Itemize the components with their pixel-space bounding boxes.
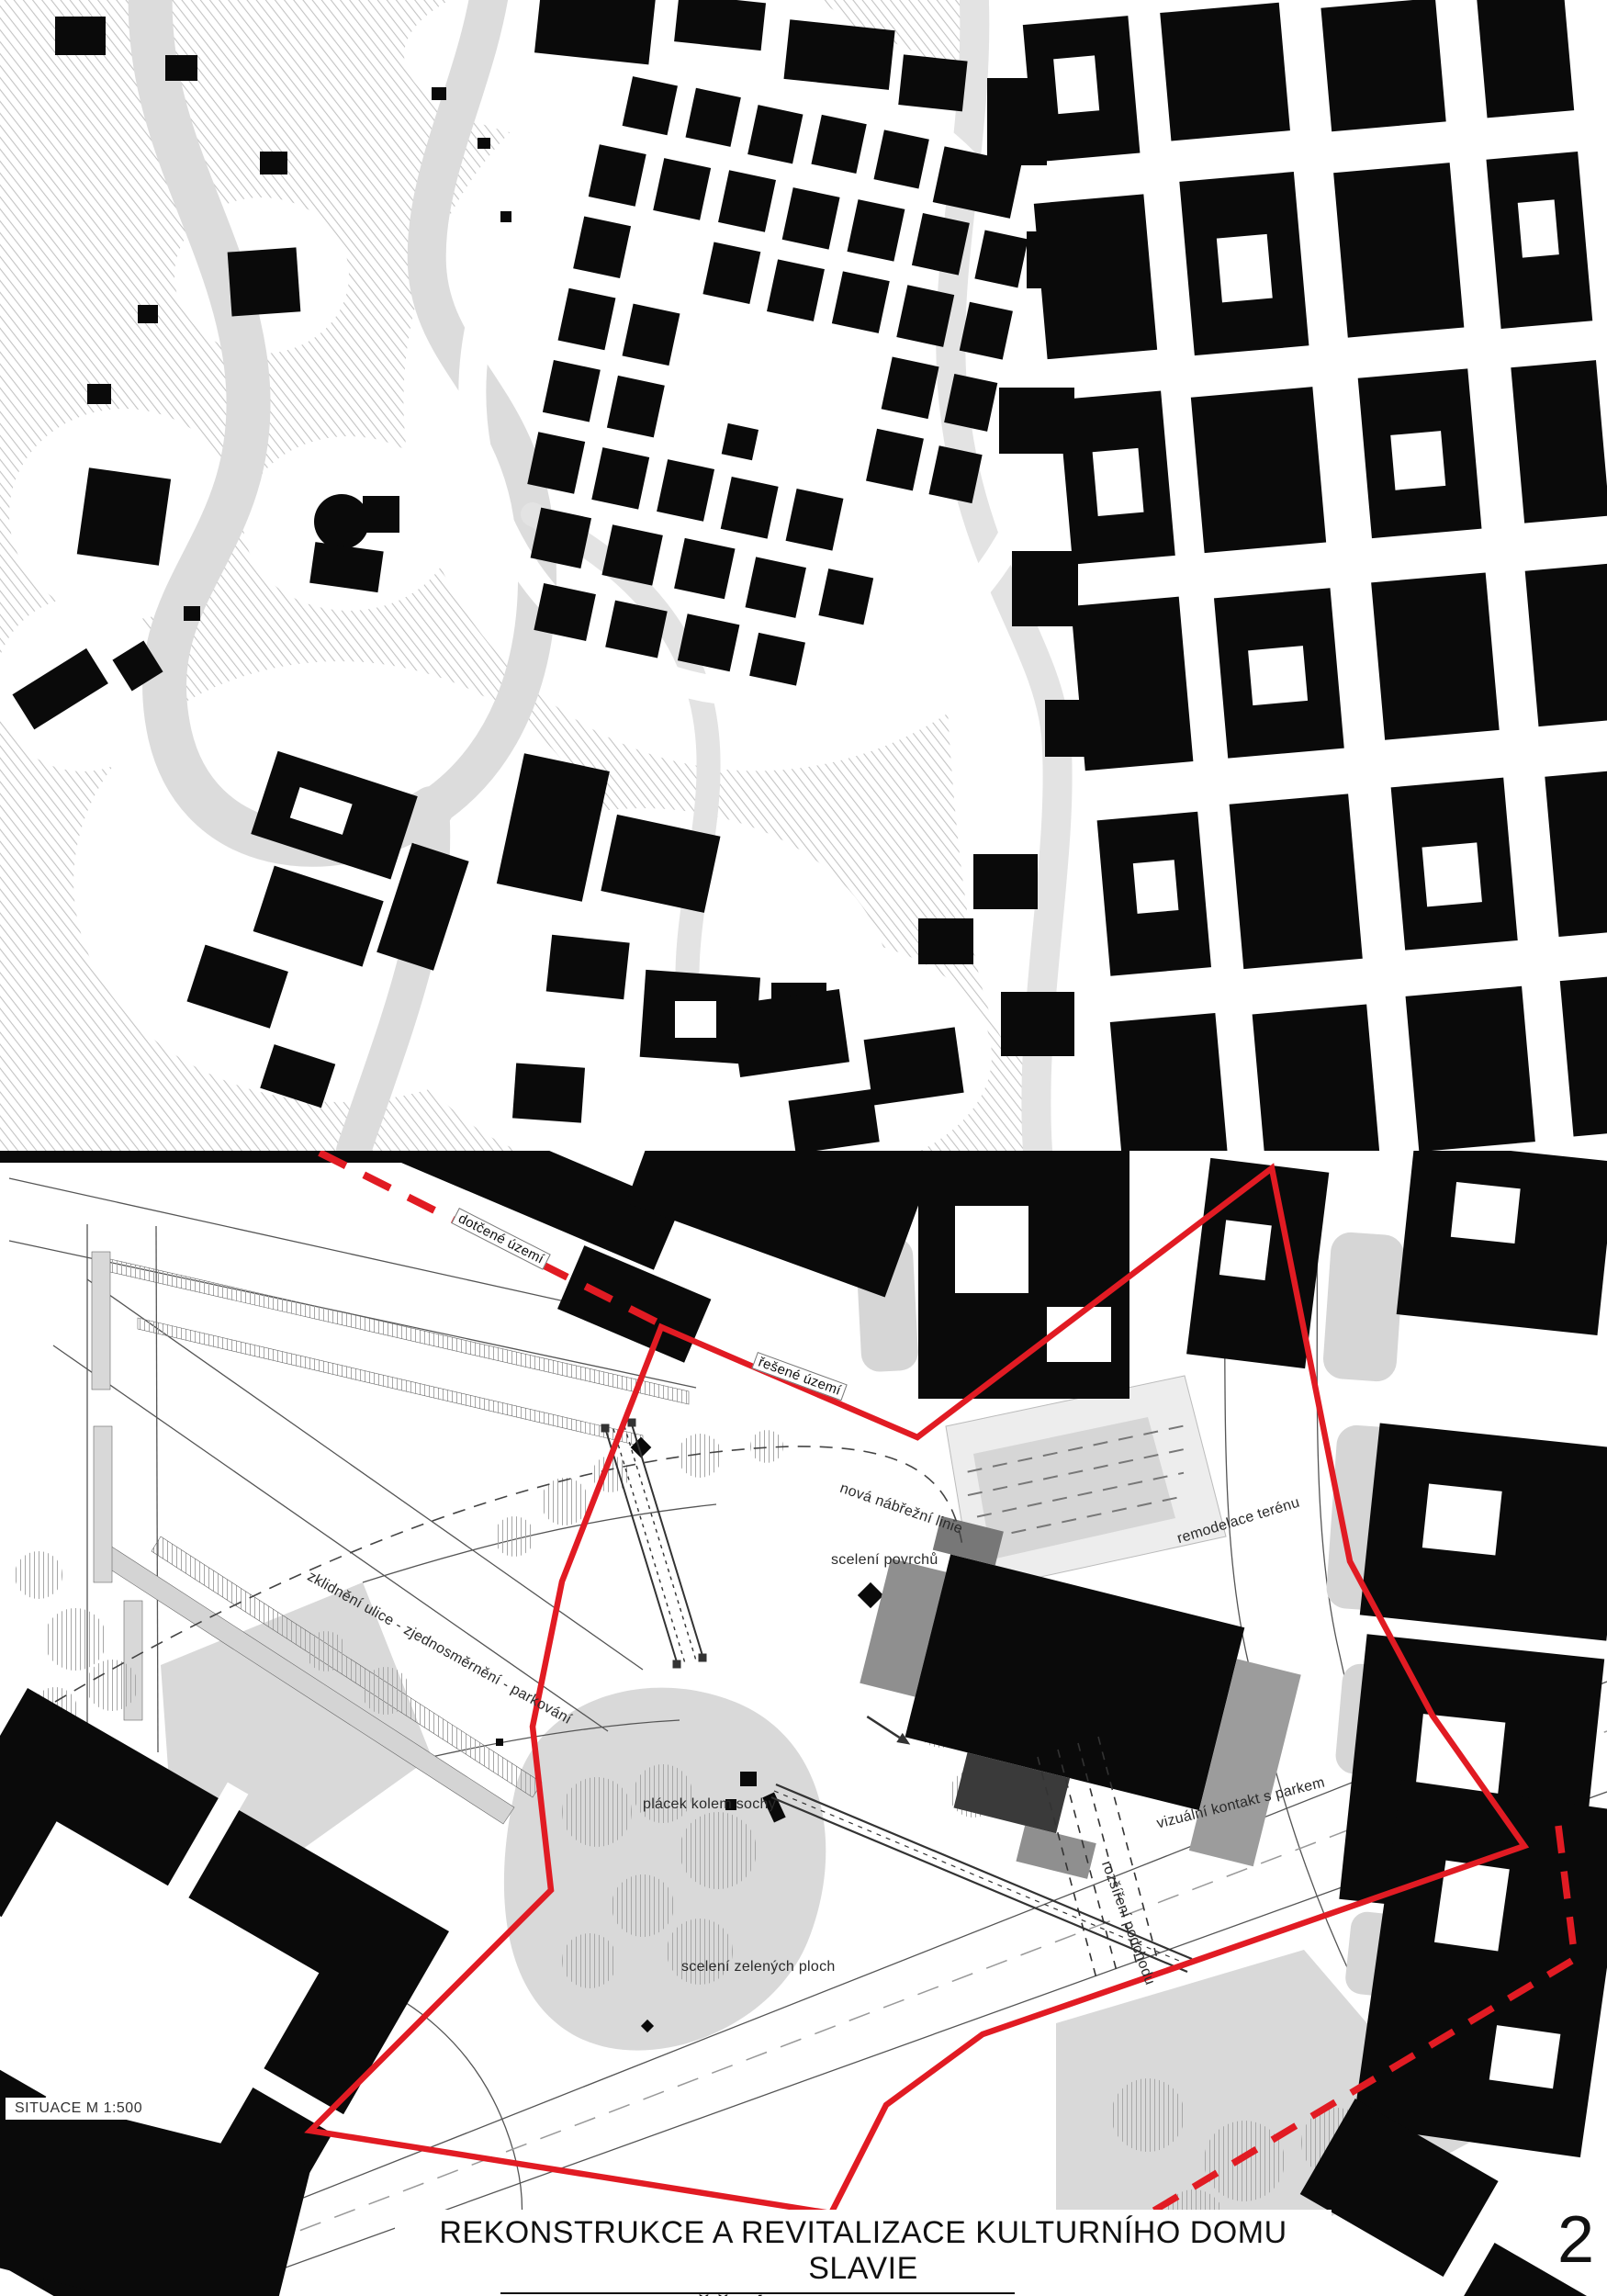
page-number: 2 (1557, 2202, 1594, 2278)
figure-ground-map (0, 0, 1607, 1151)
label-placek-kolem-sochy: plácek kolem sochy (643, 1796, 776, 1813)
label-sceleni-povrchu: scelení povrchů (831, 1552, 938, 1569)
title-block: REKONSTRUKCE A REVITALIZACE KULTURNÍHO D… (395, 2210, 1332, 2296)
label-sceleni-zelenych-ploch: scelení zelených ploch (681, 1959, 836, 1975)
bottom-rule (500, 2292, 1015, 2294)
presentation-board: dotčené území řešené území nová nábřežní… (0, 0, 1607, 2296)
site-plan (0, 1151, 1607, 2296)
project-title: REKONSTRUKCE A REVITALIZACE KULTURNÍHO D… (395, 2215, 1332, 2287)
scale-badge: SITUACE M 1:500 (6, 2098, 152, 2120)
